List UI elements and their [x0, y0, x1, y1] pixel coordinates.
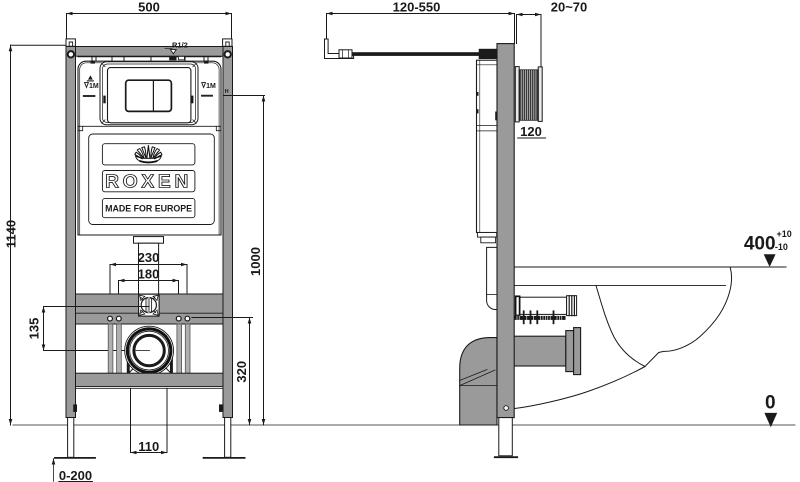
svg-text:135: 135: [27, 318, 42, 340]
svg-text:120-550: 120-550: [393, 0, 441, 15]
svg-text:0: 0: [765, 393, 776, 414]
svg-text:180: 180: [138, 267, 160, 282]
svg-text:0-200: 0-200: [59, 468, 92, 482]
svg-text:20~70: 20~70: [551, 0, 588, 15]
svg-text:1M: 1M: [89, 83, 99, 90]
svg-text:R1/2: R1/2: [172, 41, 188, 50]
svg-text:120: 120: [520, 124, 542, 139]
svg-text:1M: 1M: [206, 83, 216, 90]
svg-text:400: 400: [744, 233, 776, 254]
svg-text:110: 110: [138, 439, 159, 454]
svg-text:500: 500: [138, 0, 160, 15]
svg-text:+10: +10: [777, 229, 792, 239]
svg-text:1140: 1140: [4, 220, 19, 248]
svg-text:ROXEN: ROXEN: [105, 172, 192, 192]
svg-text:H: H: [225, 89, 229, 95]
svg-text:MADE FOR EUROPE: MADE FOR EUROPE: [105, 203, 192, 213]
svg-text:230: 230: [138, 250, 160, 265]
svg-text:320: 320: [234, 361, 249, 383]
svg-text:-10: -10: [775, 242, 788, 252]
svg-text:1000: 1000: [248, 247, 263, 276]
